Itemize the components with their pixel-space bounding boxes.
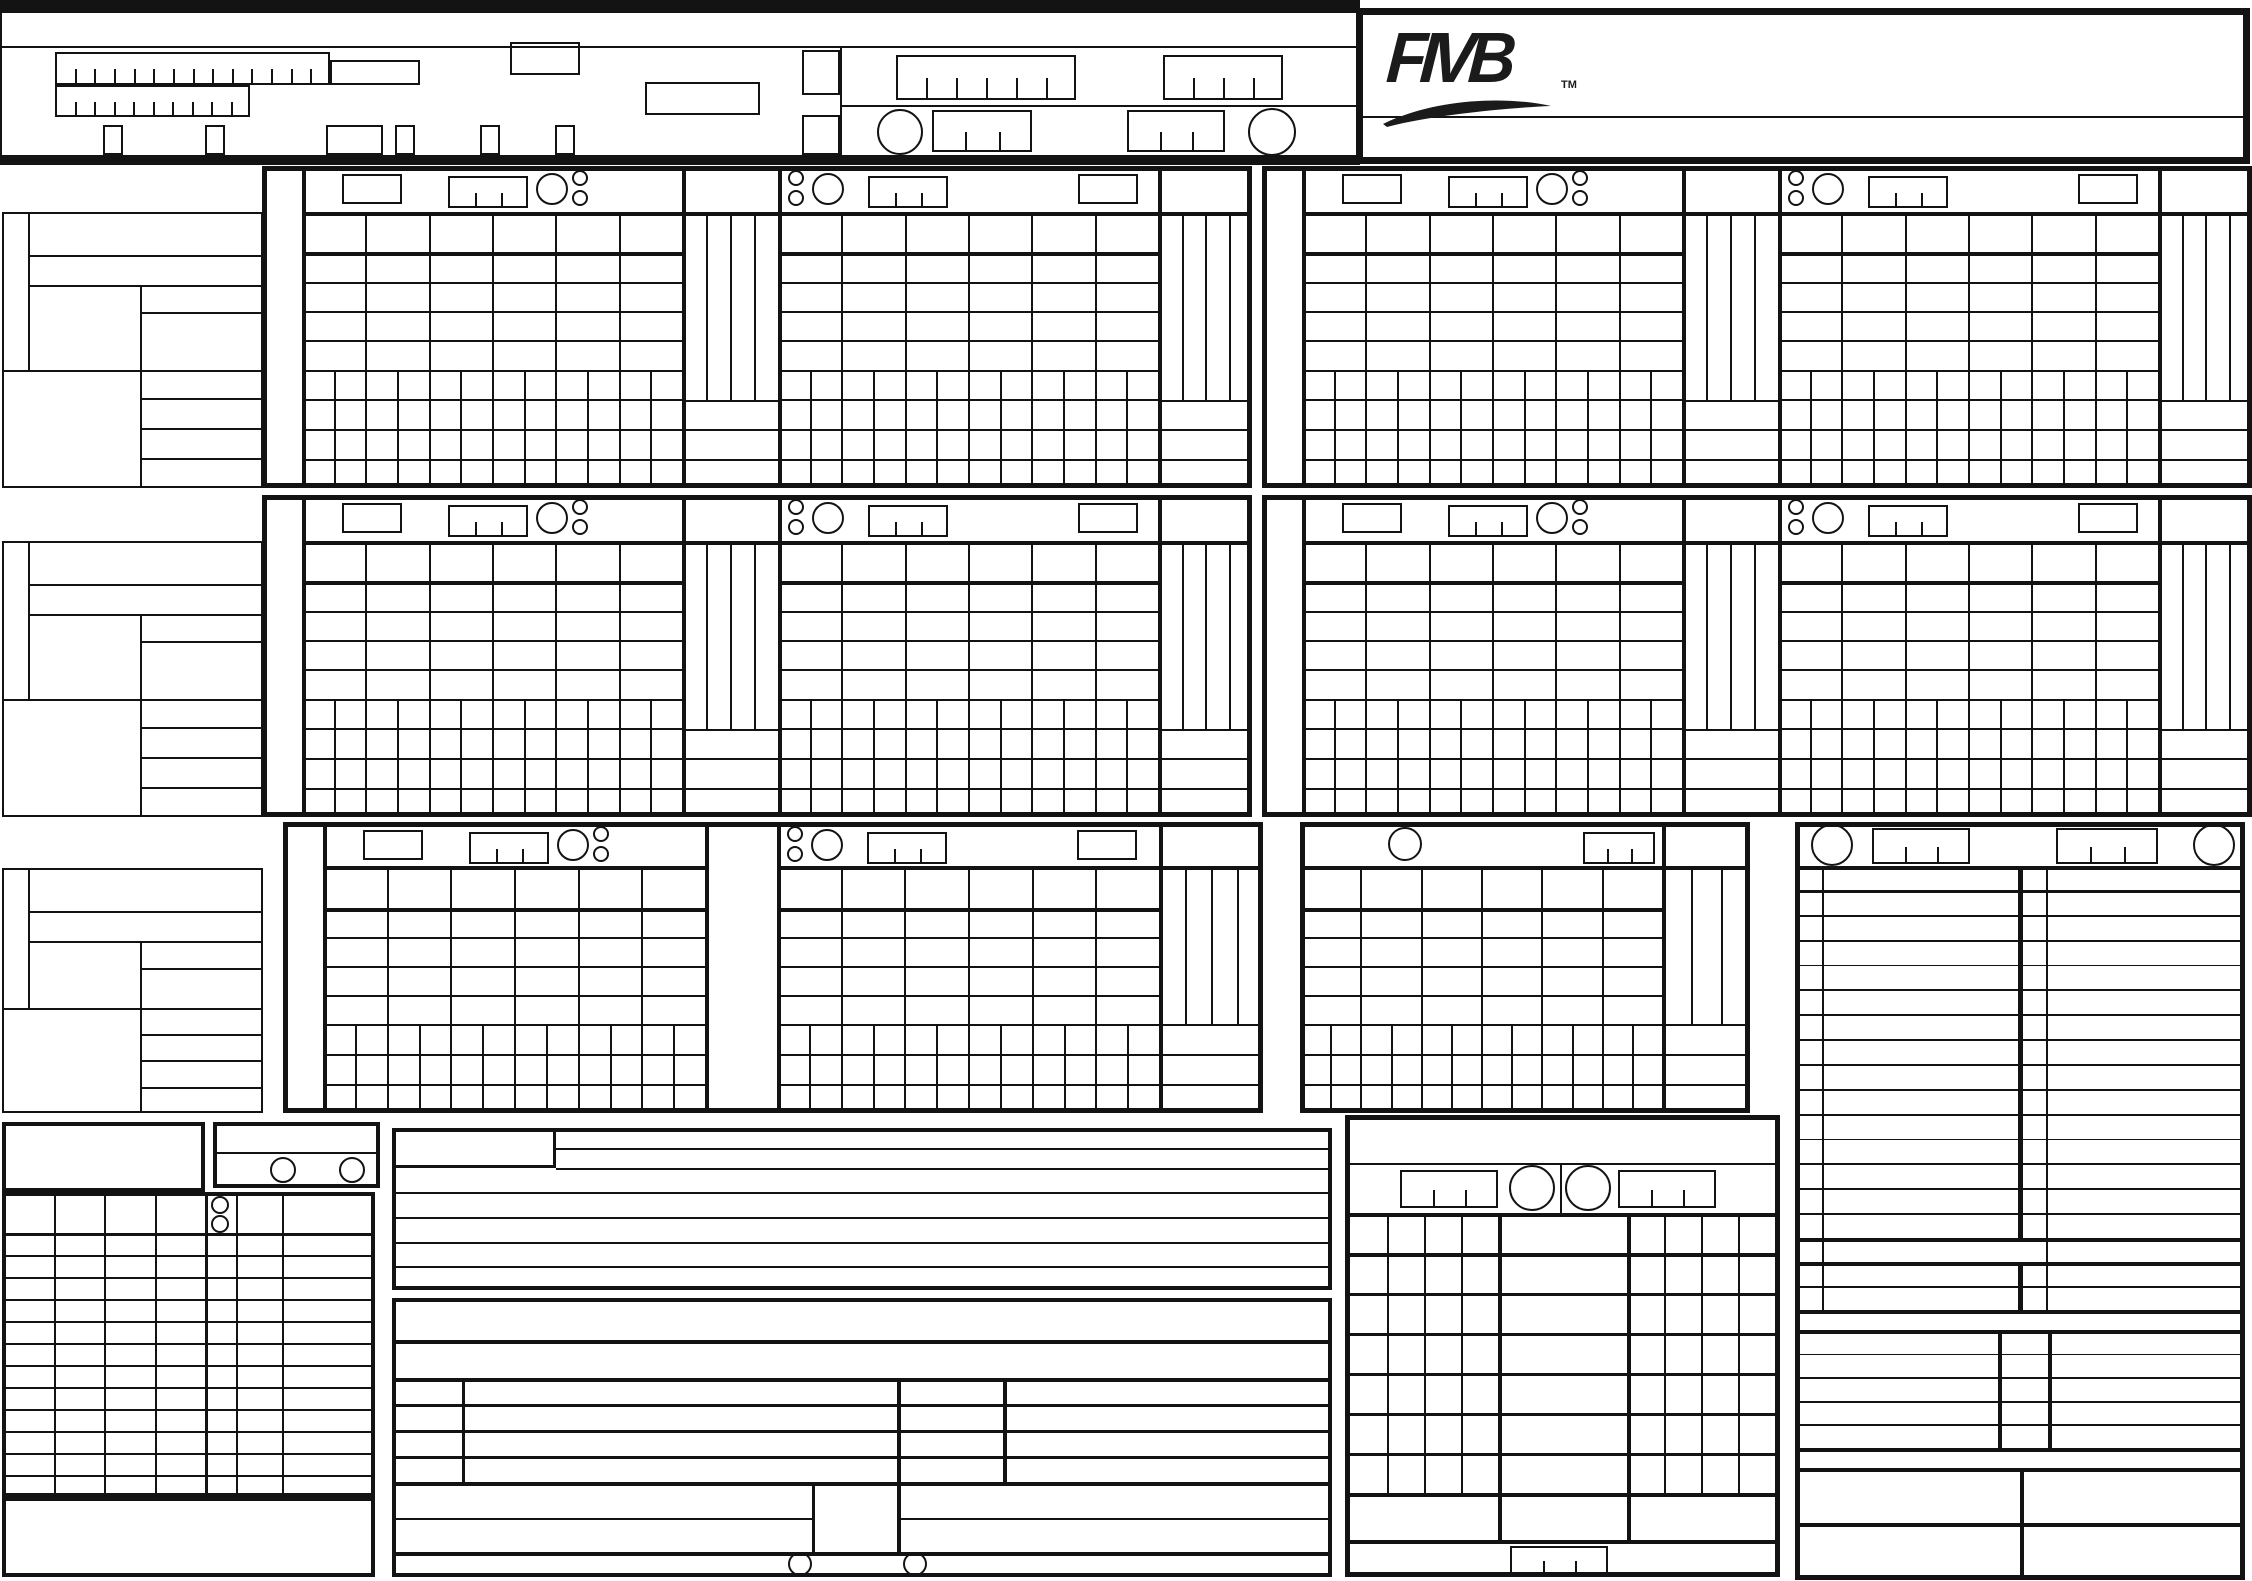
header-row-divider	[1302, 541, 2252, 545]
set-start-time-field	[1868, 176, 1948, 208]
team-letter-circle	[1536, 173, 1568, 205]
team-letter-circle	[536, 502, 568, 534]
tick-mark	[1895, 193, 1897, 206]
serve-column-line	[2000, 370, 2002, 488]
tick-mark	[133, 102, 135, 115]
tick-mark	[1253, 78, 1255, 98]
points-column-border	[682, 166, 686, 488]
tick-mark	[1921, 522, 1923, 535]
tick-mark	[965, 132, 967, 150]
team-a-toss-circle	[877, 109, 923, 155]
position-column-line	[2095, 541, 2097, 817]
tick-mark	[212, 69, 214, 83]
points-column-border	[2158, 495, 2162, 817]
fivb-swoosh-icon	[1379, 93, 1569, 129]
scoresheet-page: FIVB TM	[0, 0, 2252, 1581]
points-total-divider	[2158, 459, 2252, 461]
tick-mark	[251, 69, 253, 83]
position-column-line	[492, 541, 494, 817]
roster-row	[1795, 1213, 2245, 1215]
sanctions-title-box	[2, 1122, 205, 1192]
position-column-line	[429, 541, 431, 817]
sanctions-row	[2, 1365, 375, 1367]
points-total-divider	[1662, 1024, 1750, 1026]
tick-mark	[1160, 132, 1162, 150]
points-total-divider	[682, 729, 778, 731]
sidebar-row	[140, 458, 263, 460]
officials-row	[1795, 1424, 2245, 1426]
fivb-logo: FIVB TM	[1379, 17, 1739, 157]
position-column-line	[619, 212, 621, 488]
team-name-box	[2078, 503, 2138, 533]
sidebar-narrow-col	[28, 868, 30, 1008]
points-column-line	[2205, 212, 2207, 400]
remarks-line	[392, 1242, 1332, 1244]
team-letter-circle	[811, 829, 843, 861]
points-total-divider	[2158, 429, 2252, 431]
sanction-team-circle	[211, 1215, 229, 1233]
position-column-line	[555, 212, 557, 488]
winner-a-circle	[788, 1552, 812, 1576]
sanctions-row	[2, 1431, 375, 1433]
set-start-time-field	[1868, 505, 1948, 537]
team-b-circle	[2193, 824, 2235, 866]
results-row	[1345, 1453, 1780, 1456]
points-column-line	[706, 212, 708, 400]
approval-title-divider	[392, 1340, 1332, 1344]
approval-row	[392, 1456, 1332, 1459]
approval-col	[462, 1378, 465, 1482]
checkbox	[480, 125, 500, 155]
points-column-line	[2182, 541, 2184, 729]
serve-column-line	[1000, 1024, 1002, 1113]
roster-row	[1795, 1188, 2245, 1190]
team-name-box	[363, 830, 423, 860]
substitution-circle	[593, 846, 609, 862]
team-name-box	[1342, 174, 1402, 204]
sidebar-row	[28, 941, 263, 943]
points-column-line	[1237, 866, 1239, 1024]
header-row-divider	[302, 212, 1252, 216]
tick-mark	[956, 78, 958, 98]
officials-band-divider	[1795, 1330, 2245, 1334]
set-start-time-field	[1448, 176, 1528, 208]
tick-mark	[522, 849, 524, 862]
tick-mark	[75, 102, 77, 115]
points-column-border	[1778, 495, 1782, 817]
fivb-logo-box: FIVB TM	[1356, 8, 2250, 164]
position-column-line	[2031, 212, 2033, 488]
position-column-line	[514, 866, 516, 1113]
points-column-line	[1730, 212, 1732, 400]
results-title-divider	[1345, 1163, 1780, 1165]
points-column-line	[1229, 541, 1231, 729]
sidebar-row	[28, 584, 263, 586]
points-total-divider	[682, 788, 778, 790]
serve-column-line	[1000, 370, 1002, 488]
tick-mark	[75, 69, 77, 83]
tick-mark	[926, 78, 928, 98]
tick-mark	[1921, 193, 1923, 206]
serve-column-line	[1650, 370, 1652, 488]
roster-row	[1795, 1064, 2245, 1066]
tick-mark	[173, 69, 175, 83]
team-b-toss-circle	[1248, 108, 1296, 156]
position-column-line	[1968, 541, 1970, 817]
team-name-box	[1077, 830, 1137, 860]
tick-mark	[232, 69, 234, 83]
position-column-line	[429, 212, 431, 488]
serve-column-line	[1334, 699, 1336, 817]
serve-column-line	[524, 370, 526, 488]
position-column-line	[1421, 866, 1423, 1113]
points-total-divider	[1682, 788, 1778, 790]
tick-mark	[1016, 78, 1018, 98]
serve-column-line	[460, 699, 462, 817]
substitution-circle	[1788, 190, 1804, 206]
points-total-divider	[1159, 1084, 1263, 1086]
libero-band-divider	[1795, 1262, 2245, 1266]
results-col	[1461, 1213, 1463, 1493]
serve-column-line	[2126, 699, 2128, 817]
points-column-line	[1706, 541, 1708, 729]
sidebar-section-divider	[2, 1008, 263, 1010]
teams-center-divider	[2018, 866, 2023, 1238]
points-total-divider	[1682, 729, 1778, 731]
sidebar-row	[140, 727, 263, 729]
position-column-line	[1032, 866, 1034, 1113]
points-column-line	[2229, 541, 2231, 729]
improper-b-circle	[339, 1157, 365, 1183]
results-row	[1345, 1413, 1780, 1416]
serve-column-line	[2063, 370, 2065, 488]
serve-column-line	[1650, 699, 1652, 817]
sanctions-row	[2, 1321, 375, 1323]
serve-column-line	[355, 1024, 357, 1113]
serve-column-line	[1397, 370, 1399, 488]
remarks-title-box	[392, 1128, 556, 1168]
points-total-divider	[1682, 400, 1778, 402]
tick-mark	[496, 849, 498, 862]
sidebar-section-divider	[2, 699, 263, 701]
sidebar-row	[140, 428, 263, 430]
position-column-line	[1031, 212, 1033, 488]
tick-mark	[475, 193, 477, 206]
sidebar-row	[140, 1034, 263, 1036]
approval-row	[392, 1430, 1332, 1433]
team-name-box	[342, 503, 402, 533]
sidebar-narrow-col	[28, 541, 30, 699]
team-b-code-field	[1127, 110, 1225, 152]
sanctions-row	[2, 1277, 375, 1279]
tick-mark	[94, 69, 96, 83]
winner-b-circle	[903, 1552, 927, 1576]
points-column-line	[1205, 541, 1207, 729]
position-column-line	[365, 212, 367, 488]
substitution-circle	[1788, 499, 1804, 515]
position-column-line	[1365, 212, 1367, 488]
position-column-line	[1365, 541, 1367, 817]
serve-column-line	[810, 370, 812, 488]
officials-band-divider	[1795, 1310, 2245, 1314]
substitution-circle	[1572, 170, 1588, 186]
points-column-line	[1730, 541, 1732, 729]
approval-subtitle-divider	[392, 1378, 1332, 1382]
position-column-line	[1492, 541, 1494, 817]
points-column-line	[730, 541, 732, 729]
tick-mark	[1631, 849, 1633, 862]
results-col-thick	[1498, 1213, 1502, 1540]
tick-mark	[291, 69, 293, 83]
sidebar-row	[140, 787, 263, 789]
serve-column-line	[1127, 1024, 1129, 1113]
fivb-trademark-text: TM	[1561, 79, 1577, 91]
checkbox	[103, 125, 123, 155]
results-col	[1664, 1213, 1666, 1493]
tick-mark	[895, 193, 897, 206]
points-column-border	[2158, 166, 2162, 488]
match-info-panel-1	[2, 212, 263, 488]
team-letter-circle	[812, 173, 844, 205]
substitution-circle	[788, 499, 804, 515]
substitution-circle	[1572, 499, 1588, 515]
header-row-divider	[302, 541, 1252, 545]
points-column-border	[1662, 822, 1666, 1113]
sidebar-row	[140, 1060, 263, 1062]
officials-col	[1998, 1330, 2002, 1448]
roster-header-divider	[1795, 890, 2245, 893]
set-start-time-field	[448, 505, 528, 537]
match-info-panel-3	[2, 868, 263, 1113]
approval-row	[392, 1404, 1332, 1407]
points-column-line	[1211, 866, 1213, 1024]
substitution-circle	[788, 190, 804, 206]
tick-mark	[1575, 1561, 1577, 1572]
results-row	[1345, 1373, 1780, 1376]
serve-column-line	[2063, 699, 2065, 817]
points-total-divider	[2158, 400, 2252, 402]
roster-row	[1795, 1089, 2245, 1091]
substitution-circle	[593, 826, 609, 842]
points-column-line	[754, 541, 756, 729]
team-letter-circle	[1812, 502, 1844, 534]
serve-column-line	[610, 1024, 612, 1113]
results-col	[1738, 1213, 1740, 1493]
serve-column-line	[1126, 699, 1128, 817]
position-column-line	[1555, 541, 1557, 817]
sidebar-row	[28, 614, 263, 616]
serve-column-line	[397, 370, 399, 488]
roster-row	[1795, 940, 2245, 942]
points-column-line	[730, 212, 732, 400]
serve-column-line	[936, 370, 938, 488]
points-total-divider	[1159, 1054, 1263, 1056]
position-column-line	[1031, 541, 1033, 817]
points-column-border	[1682, 495, 1686, 817]
serve-column-line	[1632, 1024, 1634, 1113]
remarks-line	[392, 1192, 1332, 1194]
tick-mark	[1501, 193, 1503, 206]
team-name-box	[1342, 503, 1402, 533]
serve-column-line	[1587, 370, 1589, 488]
side-box-2	[802, 115, 840, 155]
points-column-border	[1682, 166, 1686, 488]
roster-row	[1795, 1014, 2245, 1016]
team-letter-circle	[1388, 827, 1422, 861]
position-column-line	[1968, 212, 1970, 488]
points-total-divider	[2158, 758, 2252, 760]
team-letter-circle	[812, 502, 844, 534]
sanctions-row	[2, 1409, 375, 1411]
position-column-line	[1095, 212, 1097, 488]
checkbox-wide	[326, 125, 383, 155]
sanctions-header-divider	[2, 1233, 375, 1236]
points-column-line	[754, 212, 756, 400]
serve-column-line	[1460, 699, 1462, 817]
results-col	[1387, 1213, 1389, 1493]
tick-mark	[2124, 847, 2126, 862]
position-column-line	[1541, 866, 1543, 1113]
points-column-line	[1754, 541, 1756, 729]
team-name-box	[1078, 174, 1138, 204]
results-team-a-field	[1400, 1170, 1498, 1208]
points-column-border	[778, 166, 782, 488]
tick-mark	[2090, 847, 2092, 862]
position-column-line	[450, 866, 452, 1113]
checkbox	[555, 125, 575, 155]
header-rule	[0, 46, 1358, 48]
team-letter-circle	[536, 173, 568, 205]
position-column-line	[1555, 212, 1557, 488]
sidebar-row	[140, 641, 263, 643]
results-header-divider	[1560, 1163, 1562, 1213]
substitution-circle	[572, 170, 588, 186]
team-b-name-field	[2056, 828, 2158, 864]
serve-column-line	[1391, 1024, 1393, 1113]
checkbox	[395, 125, 415, 155]
points-total-divider	[1158, 429, 1252, 431]
top-bar	[0, 0, 1360, 11]
serve-column-line	[1334, 370, 1336, 488]
officials-col	[2048, 1330, 2052, 1448]
tick-mark	[1192, 132, 1194, 150]
team-letter-circle	[557, 829, 589, 861]
points-total-divider	[682, 429, 778, 431]
results-grid-top	[1345, 1213, 1780, 1217]
points-column-line	[1229, 212, 1231, 400]
team-name-box	[342, 174, 402, 204]
roster-row	[1795, 1039, 2245, 1041]
roster-row	[1795, 989, 2245, 991]
serve-column-line	[1330, 1024, 1332, 1113]
points-total-divider	[1159, 1024, 1263, 1026]
points-column-line	[706, 541, 708, 729]
libero-band-divider	[1795, 1238, 2245, 1242]
fivb-logo-text: FIVB	[1384, 16, 1512, 98]
results-row	[1345, 1333, 1780, 1336]
results-row	[1345, 1293, 1780, 1296]
sidebar-row	[140, 968, 263, 970]
substitution-circle	[572, 499, 588, 515]
position-column-line	[841, 541, 843, 817]
serve-column-line	[482, 1024, 484, 1113]
approval-col-mid	[897, 1378, 901, 1552]
remarks-line	[556, 1148, 1332, 1150]
category-box	[510, 42, 580, 75]
tick-mark	[1465, 1190, 1467, 1206]
tick-mark	[894, 849, 896, 862]
serve-column-line	[1587, 699, 1589, 817]
results-col	[1701, 1213, 1703, 1493]
serve-column-line	[1810, 370, 1812, 488]
sidebar-section-divider	[2, 370, 263, 372]
serve-column-line	[460, 370, 462, 488]
sanctions-row	[2, 1343, 375, 1345]
serve-column-line	[1572, 1024, 1574, 1113]
set-start-time-field	[867, 832, 947, 864]
points-column-line	[1721, 866, 1723, 1024]
roster-row	[1795, 915, 2245, 917]
sanctions-row	[2, 1299, 375, 1301]
position-column-line	[2031, 541, 2033, 817]
header-row-divider	[1302, 212, 2252, 216]
tick-mark	[193, 69, 195, 83]
tick-mark	[1433, 1190, 1435, 1206]
set-start-time-field	[1583, 832, 1655, 864]
serve-column-line	[1126, 370, 1128, 488]
tick-mark	[94, 102, 96, 115]
position-column-line	[1602, 866, 1604, 1113]
position-column-line	[904, 866, 906, 1113]
points-column-line	[1182, 212, 1184, 400]
results-grid-bottom	[1345, 1493, 1780, 1497]
results-header-row	[1345, 1253, 1780, 1257]
substitution-circle	[572, 190, 588, 206]
results-col	[1424, 1213, 1426, 1493]
serve-column-line	[2126, 370, 2128, 488]
results-team-b-field	[1618, 1170, 1716, 1208]
serve-column-line	[1524, 699, 1526, 817]
team-name-box	[2078, 174, 2138, 204]
tick-mark	[1543, 1561, 1545, 1572]
results-a-circle	[1509, 1165, 1555, 1211]
officials-row	[1795, 1377, 2245, 1379]
tick-mark	[1475, 193, 1477, 206]
officials-bottom	[1795, 1448, 2245, 1452]
serve-column-line	[873, 1024, 875, 1113]
results-col-thick	[1627, 1213, 1631, 1540]
serve-column-line	[1511, 1024, 1513, 1113]
serve-column-line	[1873, 699, 1875, 817]
checkbox	[205, 125, 225, 155]
substitution-circle	[788, 519, 804, 535]
serve-column-line	[2000, 699, 2002, 817]
position-column-line	[1481, 866, 1483, 1113]
set-start-time-field	[1448, 505, 1528, 537]
sanctions-row	[2, 1475, 375, 1477]
serve-column-line	[873, 699, 875, 817]
sidebar-row	[140, 398, 263, 400]
tick-mark	[231, 102, 233, 115]
header-right-rule	[840, 105, 1358, 107]
serve-column-line	[419, 1024, 421, 1113]
points-total-divider	[1682, 429, 1778, 431]
points-column-border	[778, 495, 782, 817]
substitution-circle	[787, 846, 803, 862]
points-total-divider	[1158, 400, 1252, 402]
serve-column-line	[873, 370, 875, 488]
position-column-line	[578, 866, 580, 1113]
